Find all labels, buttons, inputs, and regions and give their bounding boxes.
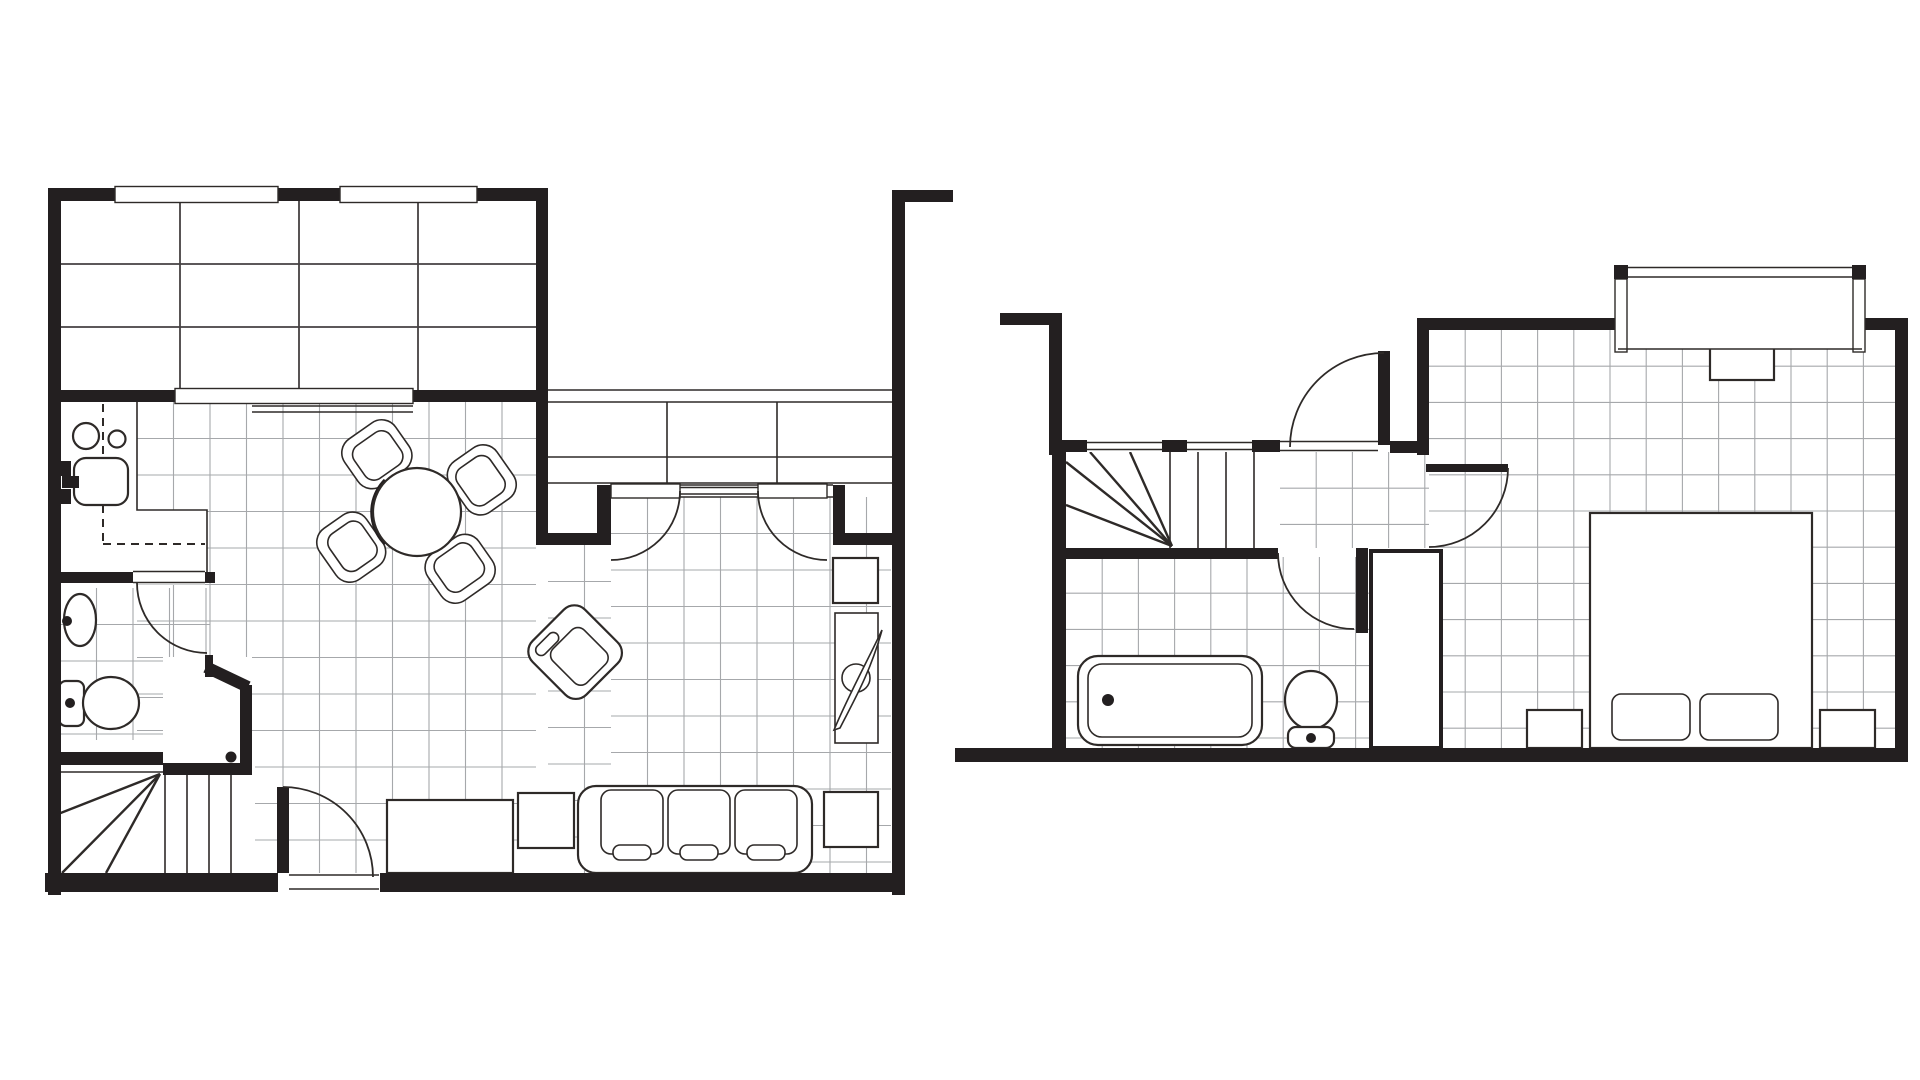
hob-burner-small [109,431,126,448]
hall-entry-door [1280,351,1390,451]
top-window-2 [340,187,477,203]
closet-door-leaf [1426,464,1508,472]
hall-door-leaf [1378,351,1390,445]
window-bay [1614,265,1866,352]
bay-post-right [1852,265,1866,279]
french-door-swing-left [611,491,680,560]
round-dining-table [373,468,461,556]
coffee-table [387,800,513,873]
hall-door-swing [1290,353,1384,447]
ground-floor-windows [115,187,477,413]
french-door-swing-right [758,491,827,560]
upper-bathroom-door-swing [1278,553,1354,629]
bay-recess [1628,279,1852,349]
plant-stand [834,613,882,743]
closet-right-wall [240,685,252,775]
serving-hatch-window [175,389,413,404]
pillow-right [1700,694,1778,740]
nightstand-right [1820,710,1875,748]
bottom-wall-left [45,873,278,892]
bathroom-door-swing [137,583,207,653]
french-door-panel-left [611,484,680,498]
sofa-three-seat [578,786,812,873]
french-door-jamb-left-h [536,533,611,545]
end-table-right [824,792,878,847]
cabinet-band-area [545,388,892,497]
upper-bottom-wall [955,748,1908,762]
bay-jamb-left [1615,279,1627,352]
hob-burner-large [73,423,99,449]
top-window-1 [115,187,278,203]
nightstand-left [1527,710,1582,748]
entrance-door-leaf [277,787,289,873]
bath-door-post [1356,548,1368,633]
upper-flag-stub-v [1049,313,1062,455]
floor-plan-drawing [0,0,1920,1080]
bay-post-left [1614,265,1628,279]
bay-jamb-right [1853,279,1865,352]
kitchen-counter-area [137,510,207,572]
upper-floor-plan [955,265,1908,762]
bathtub-drain-dot [1102,694,1114,706]
bedroom-closet-door [1426,464,1508,547]
french-door-jamb-right-h [833,533,905,545]
bath-stair-wall [48,752,163,765]
bath-hall-wall [1066,548,1278,559]
bottom-wall-right [380,873,905,892]
upper-left-wall [1052,445,1066,762]
hall-tiles [1280,452,1429,548]
upper-bathroom [1078,656,1337,748]
kitchen-sink [74,458,128,505]
patio-right-wall [536,188,548,545]
upper-toilet-flush-dot [1306,733,1316,743]
right-wall-flag-stub [892,190,953,202]
closet-bottom-wall [163,763,252,775]
entrance-door-swing [283,787,373,877]
patio-tile-grid [61,201,536,390]
bedroom-corner-post [1417,318,1429,455]
tv-cabinet [833,558,878,603]
upper-stairs [1066,452,1280,548]
sofa-group [387,786,878,873]
bedroom-top-wall-right [1862,318,1908,330]
faucet-spout [62,476,79,488]
french-door-panel-right [758,484,827,498]
end-table-left [518,793,574,848]
closet-door-swing [1429,468,1508,547]
left-wall [48,188,61,895]
sink-drain-dot [62,616,72,626]
rotated-armchair [522,599,628,705]
floor-plan-canvas [0,0,1920,1080]
pillow-left [1612,694,1690,740]
stair-window-wall [1062,440,1280,452]
built-in-cabinet [1371,551,1441,748]
bedroom-top-wall-left [1417,318,1618,330]
upper-bathroom-door [1278,553,1354,629]
toilet-flush-dot [65,698,75,708]
toilet-bowl [83,677,139,729]
upper-right-wall [1895,318,1908,762]
closet-knob-dot [226,752,237,763]
bedroom [1527,336,1875,748]
upper-toilet-bowl [1285,671,1337,729]
hall-door-stub [1390,441,1429,453]
upper-stair-area [1066,452,1280,548]
